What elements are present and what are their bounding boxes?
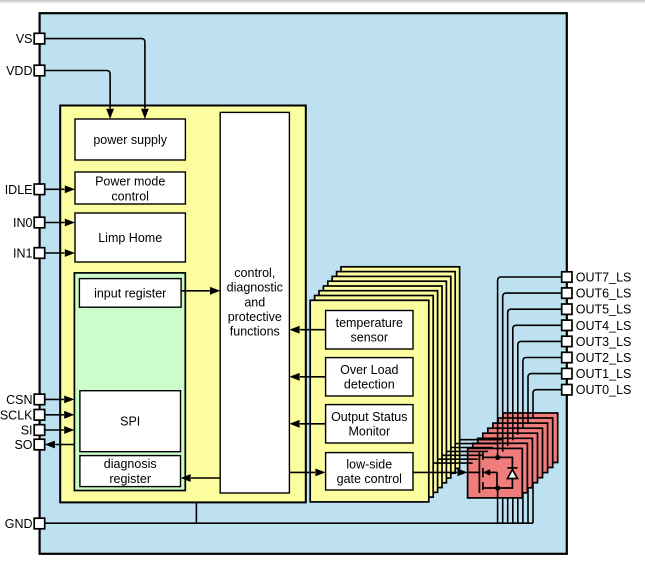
svg-text:GND: GND (5, 517, 33, 531)
svg-text:diagnostic: diagnostic (227, 281, 283, 295)
svg-text:Power mode: Power mode (95, 175, 165, 189)
svg-text:low-side: low-side (346, 458, 392, 472)
svg-text:OUT5_LS: OUT5_LS (576, 303, 632, 317)
svg-text:and: and (244, 295, 265, 309)
svg-text:OUT0_LS: OUT0_LS (576, 383, 632, 397)
svg-text:control: control (111, 190, 149, 204)
svg-text:SPI: SPI (120, 415, 140, 429)
svg-text:OUT1_LS: OUT1_LS (576, 367, 632, 381)
svg-text:gate control: gate control (337, 472, 402, 486)
svg-text:OUT7_LS: OUT7_LS (576, 271, 632, 285)
svg-text:VS: VS (16, 32, 33, 46)
svg-text:CSN: CSN (6, 393, 32, 407)
svg-text:protective: protective (228, 310, 282, 324)
svg-text:temperature: temperature (336, 316, 403, 330)
svg-text:OUT2_LS: OUT2_LS (576, 351, 632, 365)
svg-text:IN0: IN0 (13, 216, 33, 230)
svg-text:input register: input register (94, 286, 166, 300)
svg-text:Limp Home: Limp Home (98, 231, 162, 245)
svg-text:SCLK: SCLK (0, 408, 33, 422)
svg-text:Output Status: Output Status (331, 410, 407, 424)
svg-text:diagnosis: diagnosis (104, 457, 157, 471)
svg-text:Over Load: Over Load (340, 363, 398, 377)
svg-text:power supply: power supply (93, 133, 167, 147)
svg-text:OUT6_LS: OUT6_LS (576, 287, 632, 301)
svg-text:VDD: VDD (6, 64, 32, 78)
svg-text:functions: functions (230, 325, 280, 339)
svg-text:IN1: IN1 (13, 247, 33, 261)
svg-text:control,: control, (234, 266, 275, 280)
svg-text:OUT3_LS: OUT3_LS (576, 335, 632, 349)
svg-text:Monitor: Monitor (348, 425, 390, 439)
svg-text:OUT4_LS: OUT4_LS (576, 319, 632, 333)
svg-text:register: register (109, 472, 151, 486)
svg-text:SO: SO (14, 438, 32, 452)
svg-text:IDLE: IDLE (5, 183, 33, 197)
svg-text:SI: SI (21, 424, 33, 438)
svg-text:sensor: sensor (351, 331, 389, 345)
svg-text:detection: detection (344, 378, 395, 392)
